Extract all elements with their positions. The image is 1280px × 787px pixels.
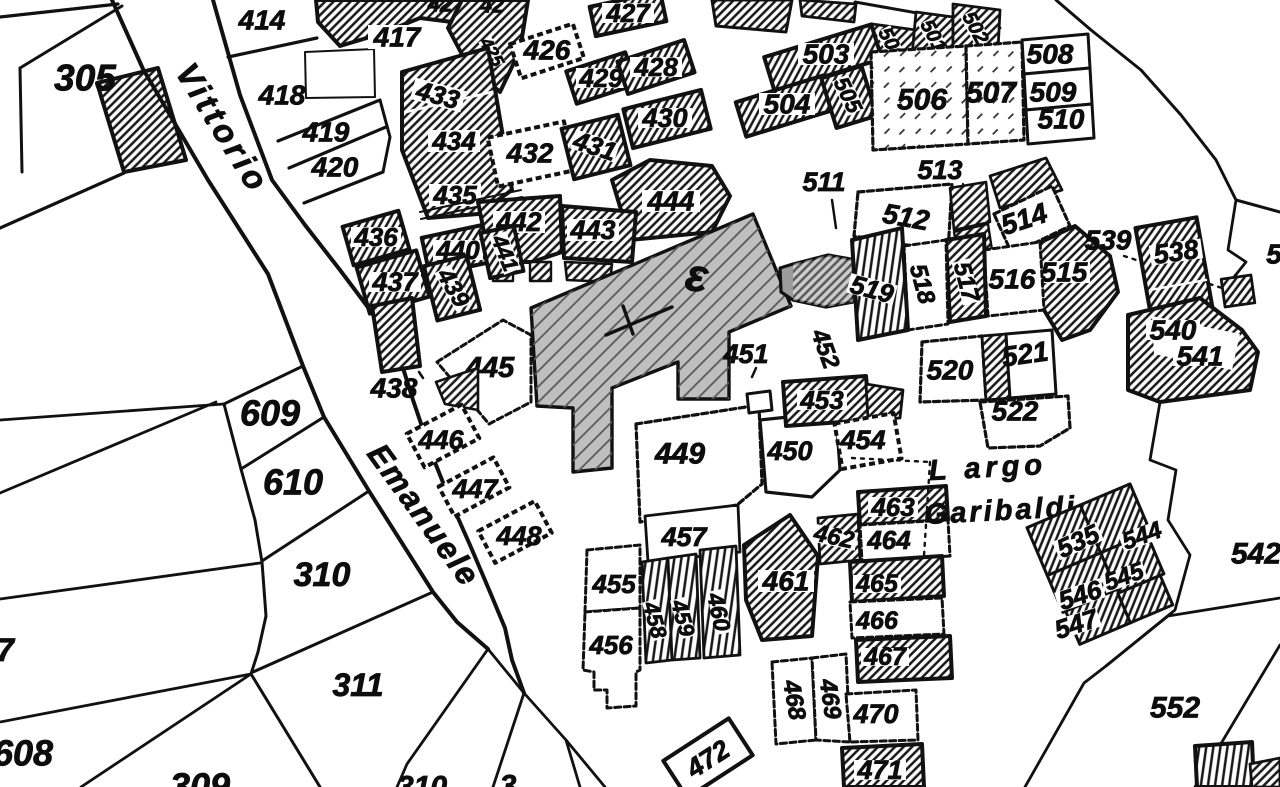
svg-text:454: 454 [839, 425, 885, 455]
svg-text:418: 418 [258, 80, 306, 111]
svg-text:451: 451 [722, 339, 768, 369]
svg-text:539: 539 [1085, 225, 1132, 256]
svg-text:448: 448 [495, 521, 541, 551]
svg-text:7: 7 [0, 632, 16, 668]
svg-text:467: 467 [863, 643, 907, 671]
svg-text:608: 608 [0, 733, 53, 774]
svg-text:419: 419 [302, 117, 350, 148]
svg-text:516: 516 [989, 264, 1036, 295]
svg-text:515: 515 [1041, 257, 1088, 288]
svg-text:508: 508 [1027, 39, 1074, 70]
svg-text:552: 552 [1150, 692, 1200, 725]
svg-text:427: 427 [605, 0, 651, 28]
svg-text:444: 444 [647, 186, 695, 217]
svg-text:42: 42 [427, 0, 453, 17]
svg-text:450: 450 [766, 436, 812, 466]
svg-text:511: 511 [802, 167, 845, 197]
svg-text:309: 309 [170, 766, 230, 787]
svg-text:504: 504 [764, 89, 811, 120]
svg-text:522: 522 [992, 396, 1039, 427]
svg-text:456: 456 [588, 630, 633, 660]
svg-text:429: 429 [578, 63, 623, 93]
svg-text:446: 446 [417, 425, 464, 455]
svg-text:436: 436 [353, 222, 398, 252]
svg-text:466: 466 [855, 607, 899, 635]
svg-text:428: 428 [633, 52, 678, 82]
svg-text:513: 513 [917, 155, 962, 185]
svg-text:507: 507 [966, 77, 1017, 110]
svg-text:453: 453 [799, 385, 844, 415]
svg-text:5: 5 [1266, 239, 1280, 270]
svg-text:609: 609 [240, 393, 300, 434]
svg-text:447: 447 [451, 474, 499, 504]
svg-text:430: 430 [641, 103, 687, 133]
svg-text:449: 449 [654, 438, 705, 471]
svg-text:437: 437 [371, 267, 419, 297]
svg-text:3: 3 [500, 770, 517, 787]
svg-text:426: 426 [523, 35, 571, 66]
svg-text:432: 432 [506, 138, 554, 169]
svg-text:469: 469 [814, 676, 847, 721]
svg-text:414: 414 [238, 5, 286, 36]
svg-text:310: 310 [294, 556, 351, 594]
svg-text:417: 417 [373, 22, 422, 53]
svg-text:470: 470 [852, 699, 898, 729]
svg-text:457: 457 [660, 522, 708, 552]
svg-text:521: 521 [1000, 335, 1051, 372]
svg-text:420: 420 [311, 152, 359, 183]
svg-text:510: 510 [1038, 104, 1085, 135]
svg-text:438: 438 [370, 373, 418, 404]
svg-text:305: 305 [54, 58, 117, 99]
svg-text:443: 443 [569, 215, 615, 245]
svg-text:471: 471 [856, 755, 902, 785]
svg-text:464: 464 [866, 525, 911, 555]
svg-text:465: 465 [855, 570, 899, 598]
svg-text:541: 541 [1177, 341, 1224, 372]
svg-text:610: 610 [263, 462, 323, 503]
svg-text:520: 520 [927, 355, 974, 386]
svg-text:463: 463 [870, 492, 915, 522]
svg-text:42: 42 [479, 0, 505, 18]
svg-text:455: 455 [591, 569, 636, 599]
svg-text:434: 434 [431, 126, 476, 156]
svg-text:542: 542 [1231, 538, 1280, 571]
svg-text:538: 538 [1152, 234, 1201, 270]
svg-text:461: 461 [762, 566, 810, 597]
svg-text:506: 506 [897, 84, 947, 117]
svg-text:L argo: L argo [928, 449, 1048, 487]
svg-text:311: 311 [332, 667, 383, 703]
svg-text:435: 435 [432, 180, 477, 210]
svg-text:503: 503 [803, 39, 850, 70]
